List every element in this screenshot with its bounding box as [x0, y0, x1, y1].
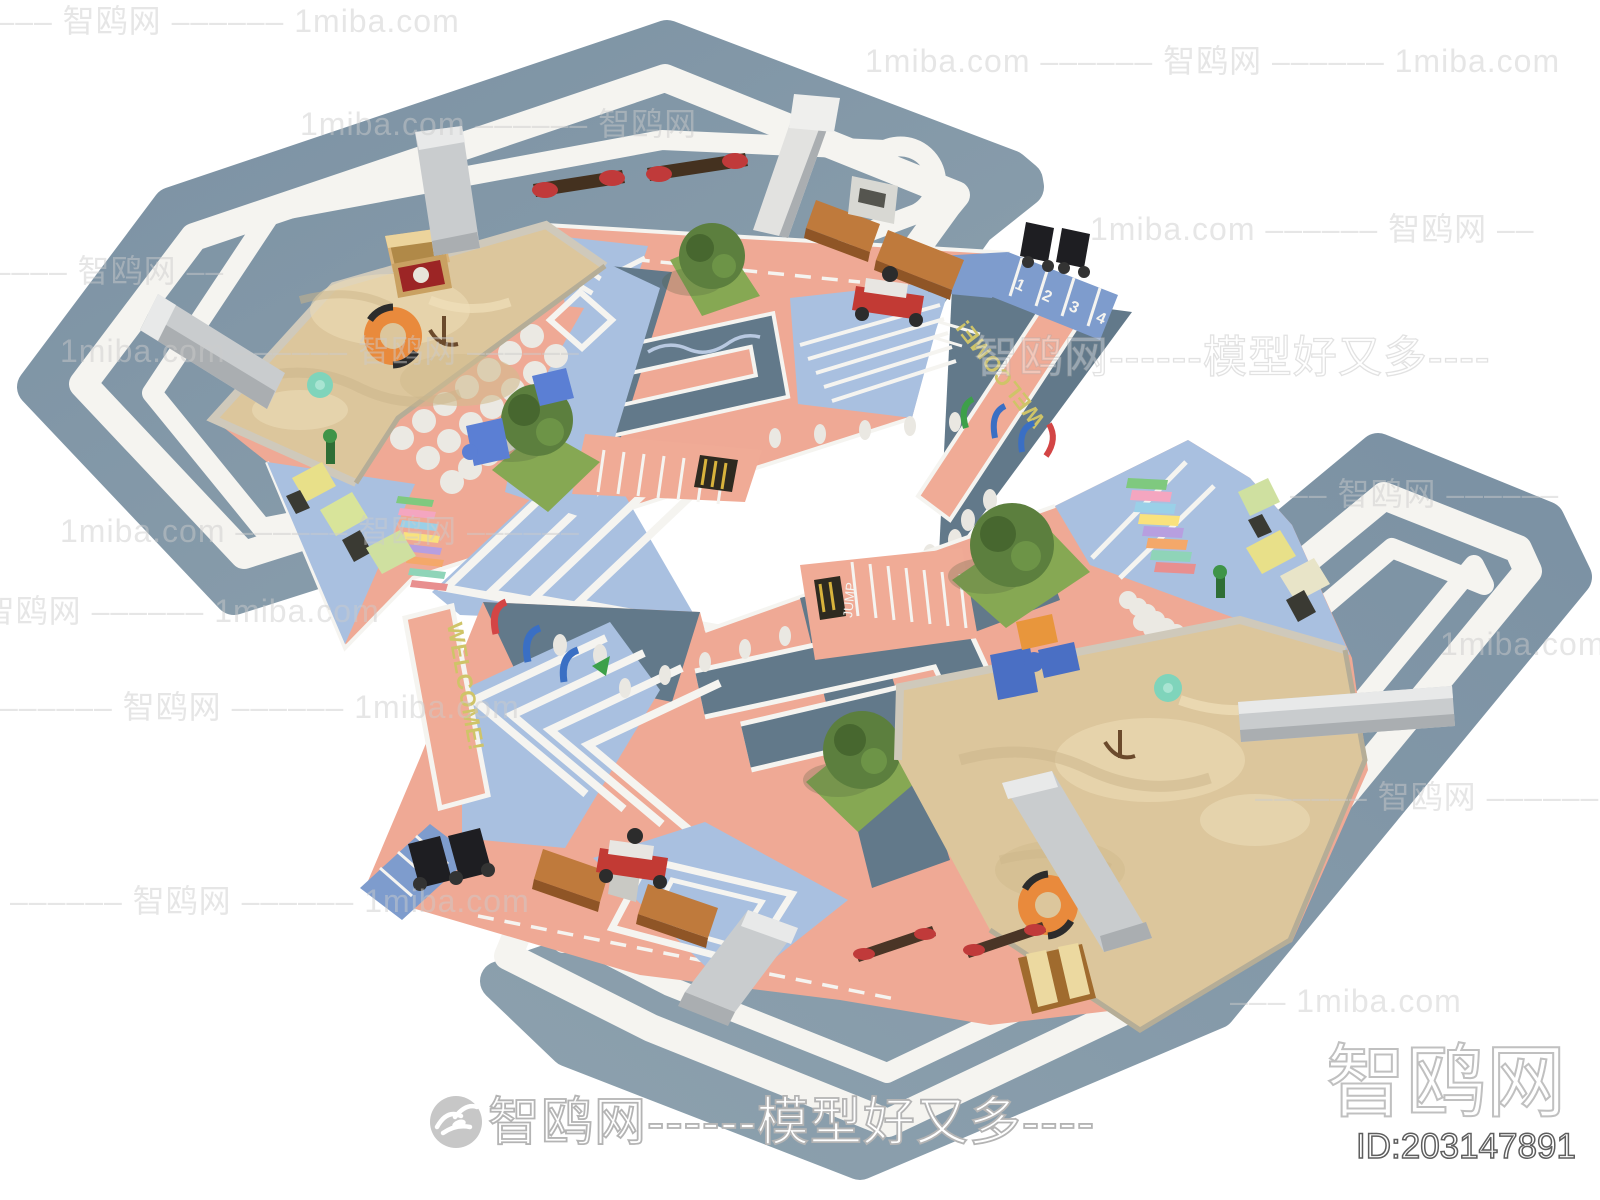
- svg-text:ID:203147891: ID:203147891: [1356, 1127, 1576, 1166]
- svg-text:–– 智鸥网 ––––––: –– 智鸥网 ––––––: [1290, 476, 1559, 512]
- svg-text:–––––– 智鸥网 –––––– 1miba.com: –––––– 智鸥网 –––––– 1miba.com: [10, 883, 530, 919]
- svg-text:1miba.com ––: 1miba.com ––: [1440, 626, 1600, 662]
- svg-text:1miba.com –––––– 智鸥网: 1miba.com –––––– 智鸥网: [300, 106, 697, 142]
- svg-text:–––––– 智鸥网 ––––––: –––––– 智鸥网 ––––––: [1255, 779, 1599, 815]
- svg-text:–––––– 智鸥网 –––––– 1miba.com: –––––– 智鸥网 –––––– 1miba.com: [0, 593, 380, 629]
- svg-text:–––––– 智鸥网 ––: –––––– 智鸥网 ––: [0, 253, 224, 289]
- svg-text:––– 1miba.com: ––– 1miba.com: [1230, 983, 1462, 1019]
- svg-text:1miba.com –––––– 智鸥网 –––––– 1m: 1miba.com –––––– 智鸥网 –––––– 1miba.com: [865, 43, 1560, 79]
- svg-text:–––––– 智鸥网 –––––– 1miba.com: –––––– 智鸥网 –––––– 1miba.com: [0, 3, 460, 39]
- svg-text:–––––– 智鸥网 –––––– 1miba.com: –––––– 智鸥网 –––––– 1miba.com: [0, 689, 520, 725]
- svg-text:智鸥网------模型好又多----: 智鸥网------模型好又多----: [974, 333, 1491, 382]
- svg-text:1miba.com –––––– 智鸥网 ––––––: 1miba.com –––––– 智鸥网 ––––––: [60, 333, 580, 369]
- svg-text:JUMP: JUMP: [840, 582, 858, 619]
- svg-text:智鸥网------模型好又多----: 智鸥网------模型好又多----: [488, 1094, 1095, 1152]
- svg-text:1miba.com –––––– 智鸥网 ––––––: 1miba.com –––––– 智鸥网 ––––––: [60, 513, 580, 549]
- svg-text:智鸥网: 智鸥网: [1326, 1038, 1566, 1127]
- svg-text:1miba.com –––––– 智鸥网 ––: 1miba.com –––––– 智鸥网 ––: [1090, 211, 1535, 247]
